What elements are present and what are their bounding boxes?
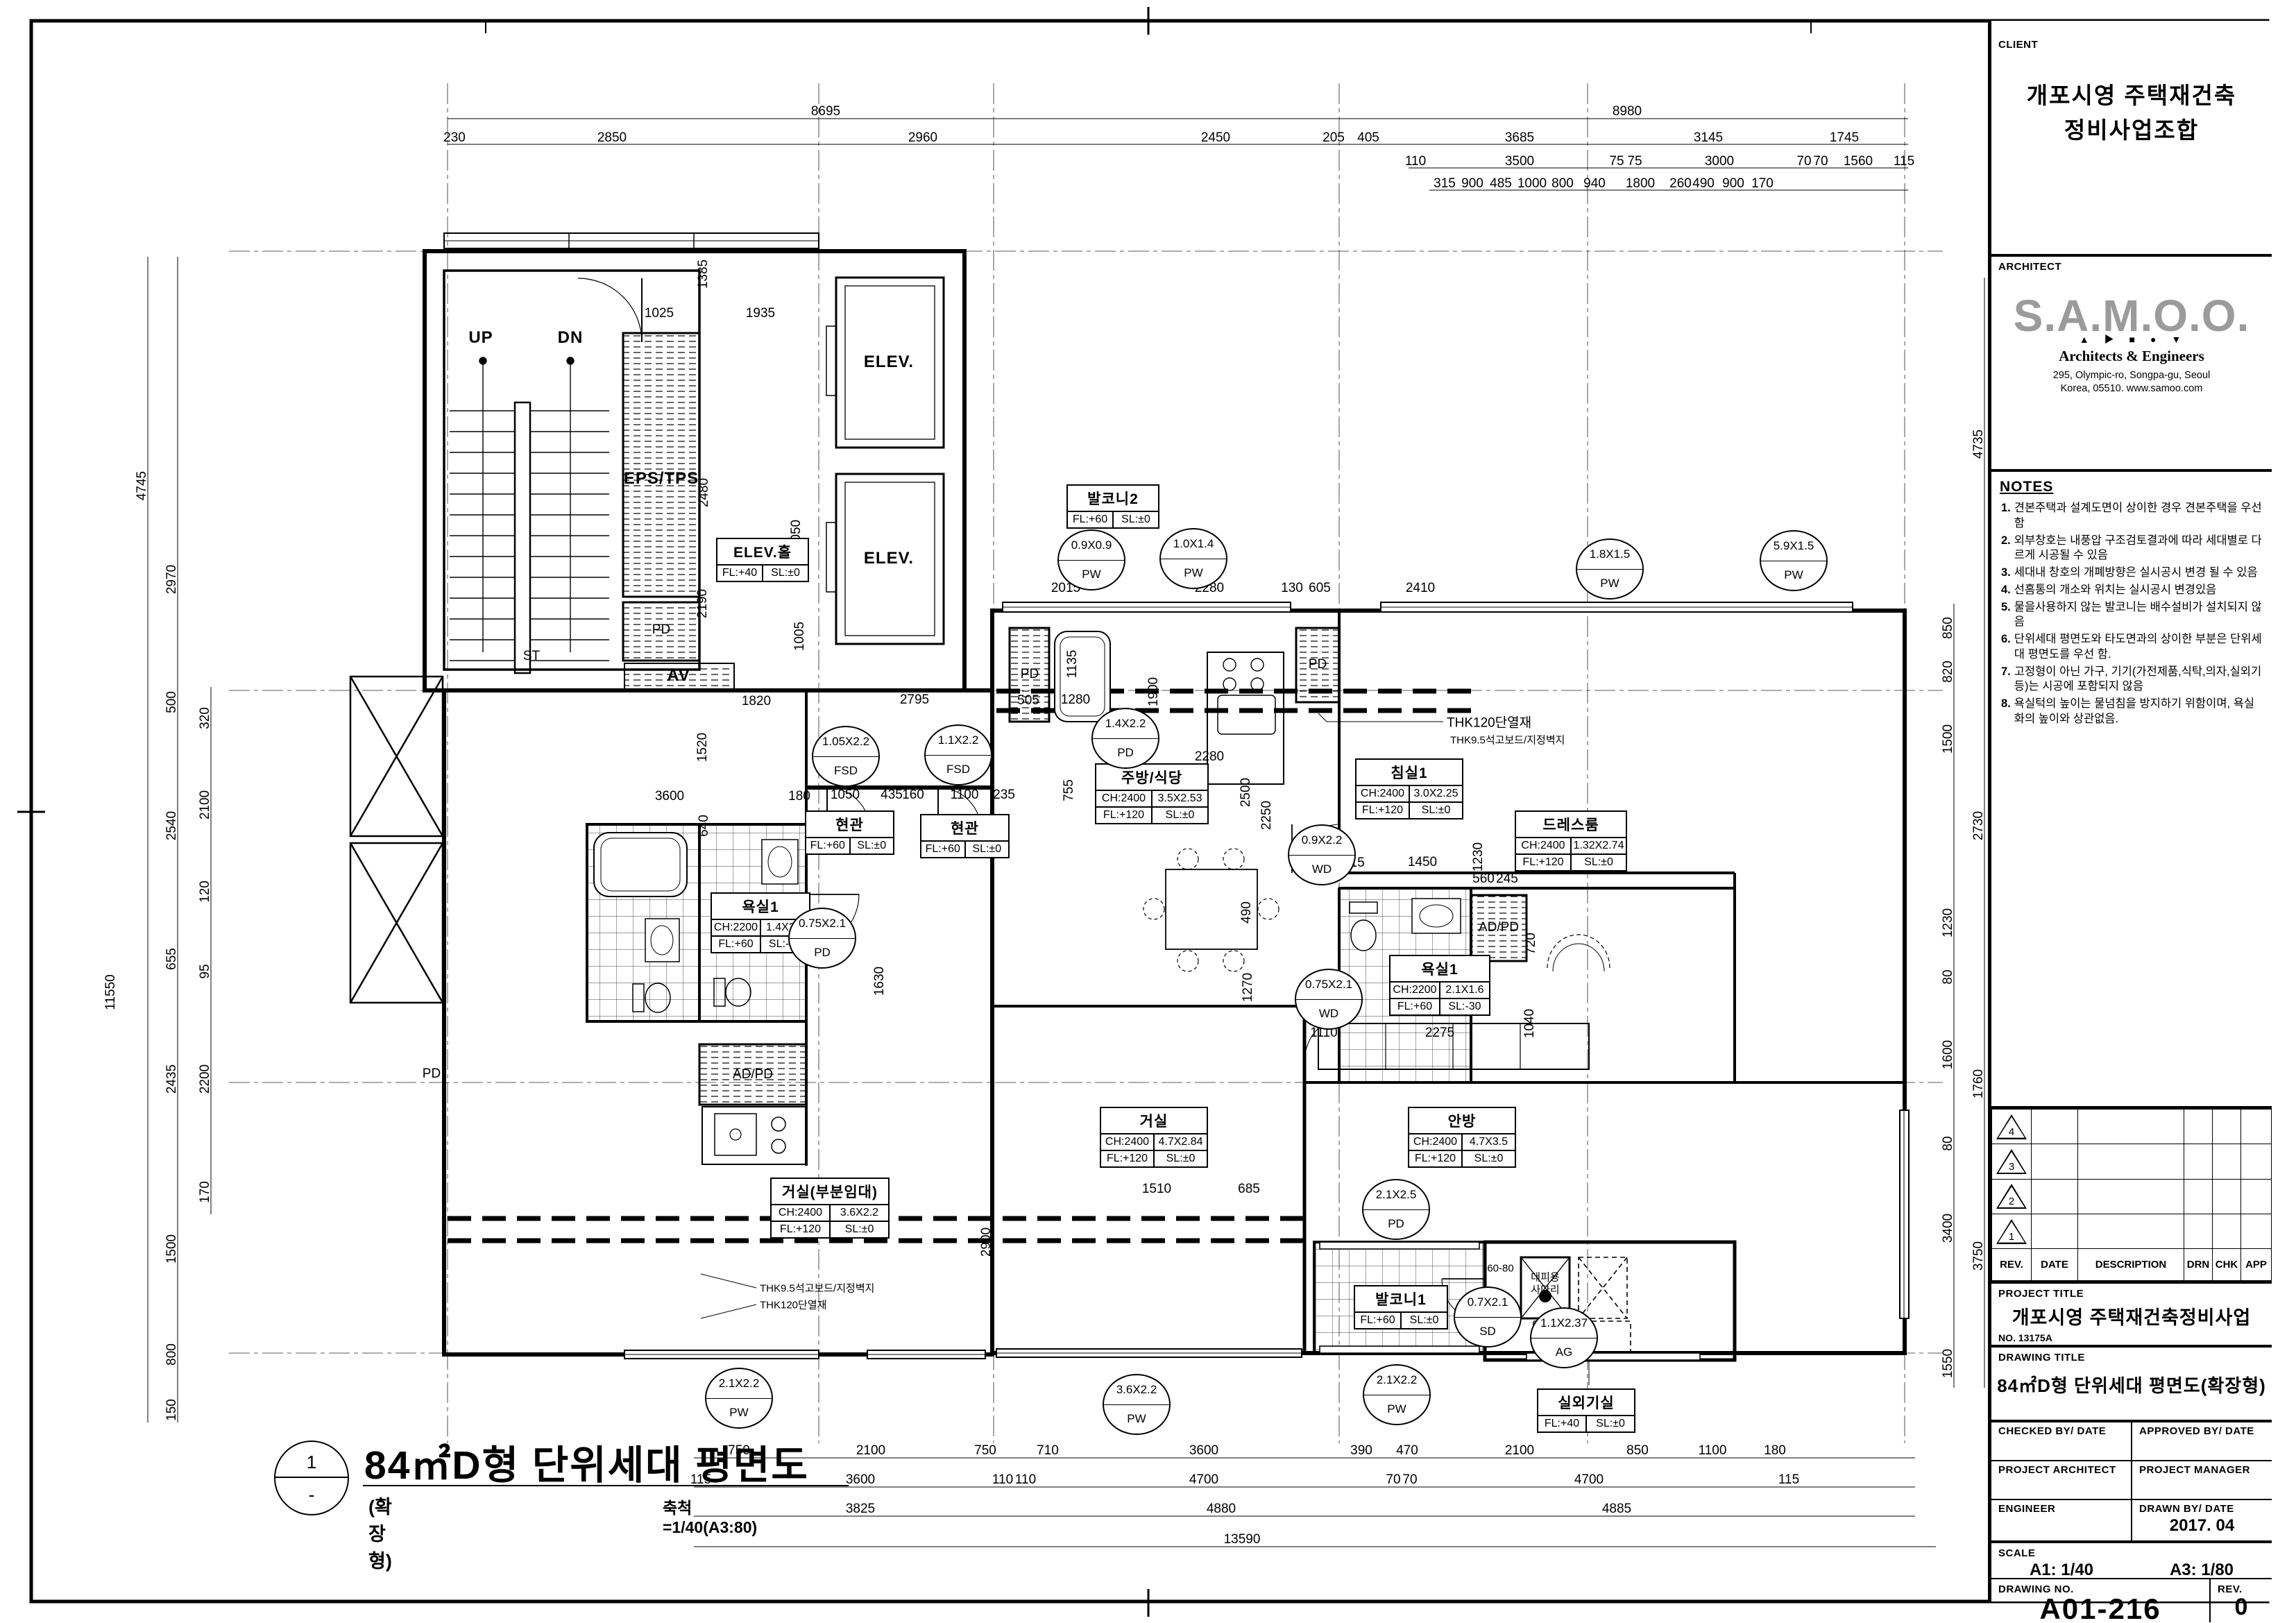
plan-title-bubble: 1 - bbox=[274, 1441, 349, 1515]
dimension-text: 490 bbox=[1239, 901, 1255, 924]
dimension-text: 150 bbox=[164, 1399, 180, 1421]
dimension-text: 2100 bbox=[1505, 1443, 1534, 1459]
engineer-label: ENGINEER bbox=[1991, 1500, 2131, 1515]
plan-title-text: 84㎡D형 단위세대 평면도 bbox=[364, 1434, 809, 1490]
dimension-text: 1820 bbox=[742, 694, 771, 709]
project-title-section: PROJECT TITLE 개포시영 주택재건축정비사업 NO. 13175A bbox=[1991, 1284, 2272, 1348]
dimension-text: 4700 bbox=[1574, 1472, 1604, 1488]
dimension-text: 1600 bbox=[1941, 1040, 1956, 1069]
dimension-text: 1760 bbox=[1971, 1069, 1987, 1098]
dimension-text: 2435 bbox=[164, 1064, 180, 1094]
plan-text-label: ELEV. bbox=[864, 352, 914, 372]
dimension-text: 110 bbox=[1405, 154, 1426, 169]
dimension-text: 485 bbox=[1490, 176, 1512, 192]
plan-text-label: THK9.5석고보드/지정벽지 bbox=[760, 1281, 874, 1295]
plan-text-label: AD/PD bbox=[733, 1067, 773, 1082]
dimension-text: 2280 bbox=[1195, 749, 1224, 765]
opening-tag-pw: 1.8X1.5PW bbox=[1576, 538, 1644, 600]
room-info-table: 거실(부분임대)CH:24003.6X2.2FL:+120SL:±0 bbox=[770, 1178, 890, 1239]
dimension-text: 170 bbox=[1751, 176, 1774, 192]
opening-tag-fsd: 1.1X2.2FSD bbox=[924, 724, 992, 785]
opening-tag-ag: 1.1X2.37AG bbox=[1530, 1307, 1598, 1368]
plan-text-label: AV bbox=[667, 666, 690, 686]
dimension-text: 230 bbox=[443, 130, 466, 146]
dimension-text: 560 bbox=[1472, 872, 1495, 887]
note-item: 3.세대내 창호의 개폐방향은 실시공시 변경 될 수 있음 bbox=[2001, 566, 2265, 581]
scale-section: SCALE A1: 1/40 A3: 1/80 bbox=[1991, 1543, 2272, 1579]
room-info-table: 드레스룸CH:24001.32X2.74FL:+120SL:±0 bbox=[1515, 810, 1627, 872]
dimension-text: 2100 bbox=[198, 790, 213, 819]
dimension-text: 4745 bbox=[135, 471, 150, 500]
dimension-text: 320 bbox=[198, 707, 213, 729]
dimension-text: 850 bbox=[1626, 1443, 1649, 1459]
note-item: 2.외부창호는 내풍압 구조검토결과에 따라 세대별로 다르게 시공될 수 있음 bbox=[2001, 534, 2265, 564]
plan-title-number: 1 bbox=[275, 1452, 348, 1473]
opening-tag-pd: 2.1X2.5PD bbox=[1362, 1179, 1430, 1240]
dimension-text: 11550 bbox=[103, 974, 119, 1010]
dimension-text: 1385 bbox=[696, 260, 711, 289]
client-section: CLIENT 개포시영 주택재건축 정비사업조합 bbox=[1991, 35, 2272, 257]
dimension-text: 435 bbox=[881, 788, 903, 803]
drawing-no-section: DRAWING NO. A01-216 REV. 0 bbox=[1991, 1579, 2272, 1622]
client-label: CLIENT bbox=[1991, 35, 2272, 51]
dimension-text: 1500 bbox=[1941, 724, 1956, 754]
room-info-table: 안방CH:24004.7X3.5FL:+120SL:±0 bbox=[1408, 1107, 1516, 1168]
dimension-text: 850 bbox=[1941, 617, 1956, 639]
dimension-text: 95 bbox=[198, 964, 213, 978]
dimension-text: 2900 bbox=[979, 1227, 994, 1257]
drawing-no: A01-216 bbox=[1991, 1592, 2209, 1623]
dimension-text: 2970 bbox=[164, 565, 180, 594]
room-info-table: 욕실1CH:22002.1X1.6FL:+60SL:-30 bbox=[1389, 955, 1490, 1016]
project-manager-label: PROJECT MANAGER bbox=[2132, 1461, 2272, 1476]
note-item: 1.견본주택과 설계도면이 상이한 경우 견본주택을 우선함 bbox=[2001, 501, 2265, 532]
opening-tag-pw: 3.6X2.2PW bbox=[1103, 1374, 1171, 1435]
dimension-text: 1100 bbox=[1699, 1443, 1727, 1459]
architect-section: ARCHITECT S.A.M.O.O. ▲ ▶ ■ ● ▼ Architect… bbox=[1991, 257, 2272, 472]
dimension-text: 755 bbox=[1062, 779, 1077, 801]
dimension-text: 70 bbox=[1402, 1472, 1417, 1488]
dimension-text: 490 bbox=[1692, 176, 1715, 192]
dimension-text: 3400 bbox=[1941, 1214, 1956, 1243]
rev-no: 0 bbox=[2211, 1594, 2272, 1621]
opening-tag-pw: 2.1X2.2PW bbox=[1363, 1364, 1431, 1425]
dimension-text: 13590 bbox=[1224, 1532, 1261, 1547]
dimension-text: 685 bbox=[1238, 1182, 1260, 1197]
client-name: 개포시영 주택재건축 정비사업조합 bbox=[1991, 78, 2272, 147]
dimension-text: 2850 bbox=[597, 130, 627, 146]
dimension-text: 1100 bbox=[951, 788, 979, 803]
approved-by-label: APPROVED BY/ DATE bbox=[2132, 1422, 2272, 1437]
dimension-text: 2190 bbox=[695, 589, 711, 618]
opening-tag-pw: 2.1X2.2PW bbox=[705, 1368, 773, 1429]
dimension-text: 110 bbox=[992, 1472, 1013, 1488]
samoo-logo: S.A.M.O.O. ▲ ▶ ■ ● ▼ Architects & Engine… bbox=[1991, 296, 2272, 396]
dimension-text: 8695 bbox=[811, 104, 840, 119]
checked-by-label: CHECKED BY/ DATE bbox=[1991, 1422, 2131, 1437]
dimension-text: 390 bbox=[1350, 1443, 1372, 1459]
dimension-text: 820 bbox=[1941, 661, 1956, 683]
dimension-text: 315 bbox=[1434, 176, 1456, 192]
dimension-text: 4735 bbox=[1971, 430, 1987, 459]
architect-label: ARCHITECT bbox=[1991, 257, 2272, 273]
dimension-text: 900 bbox=[1461, 176, 1483, 192]
dimension-text: 1560 bbox=[1844, 154, 1873, 169]
dimension-text: 3000 bbox=[1705, 154, 1734, 169]
dimension-text: 80 bbox=[1941, 969, 1956, 984]
dimension-text: 2450 bbox=[1201, 130, 1230, 146]
note-item: 6.단위세대 평면도와 타도면과의 상이한 부분은 단위세대 평면도를 우선 함… bbox=[2001, 632, 2265, 663]
dimension-text: 245 bbox=[1496, 872, 1518, 887]
plan-text-label: PD bbox=[423, 1067, 441, 1082]
opening-tag-pd: 1.4X2.2PD bbox=[1091, 708, 1159, 769]
notes-title: NOTES bbox=[2000, 479, 2272, 495]
dimension-text: 605 bbox=[1309, 581, 1331, 596]
dimension-text: 2730 bbox=[1971, 811, 1987, 840]
project-title-label: PROJECT TITLE bbox=[1991, 1284, 2272, 1300]
dimension-text: 115 bbox=[1778, 1472, 1799, 1488]
drawn-date: 2017. 04 bbox=[2132, 1516, 2272, 1536]
dimension-text: 2540 bbox=[164, 811, 180, 840]
dimension-text: 800 bbox=[1551, 176, 1574, 192]
dimension-text: 3145 bbox=[1694, 130, 1723, 146]
plan-text-label: UP bbox=[468, 328, 493, 348]
room-info-table: 현관FL:+60SL:±0 bbox=[920, 814, 1010, 858]
dimension-text: 170 bbox=[198, 1181, 213, 1203]
dimension-text: 70 bbox=[1386, 1472, 1400, 1488]
dimension-text: 1230 bbox=[1471, 842, 1486, 872]
room-info-table: 실외기실FL:+40SL:±0 bbox=[1537, 1388, 1635, 1433]
architect-manager-row: PROJECT ARCHITECT PROJECT MANAGER bbox=[1991, 1461, 2272, 1500]
dimension-text: 1000 bbox=[1517, 176, 1547, 192]
dimension-text: 1935 bbox=[746, 306, 775, 321]
dimension-text: 640 bbox=[697, 815, 712, 837]
note-item: 5.물을사용하지 않는 발코니는 배수설비가 설치되지 않음 bbox=[2001, 600, 2265, 631]
room-info-table: 거실CH:24004.7X2.84FL:+120SL:±0 bbox=[1100, 1107, 1208, 1168]
dimension-text: 3825 bbox=[846, 1502, 875, 1517]
dimension-text: 180 bbox=[1764, 1443, 1786, 1459]
dimension-text: 505 bbox=[1017, 693, 1039, 708]
dimension-text: 75 bbox=[1609, 154, 1624, 169]
dimension-text: 75 bbox=[1627, 154, 1642, 169]
dimension-text: 720 bbox=[1524, 933, 1539, 955]
opening-tag-pw: 5.9X1.5PW bbox=[1760, 530, 1828, 591]
plan-text-label: THK120단열재 bbox=[1447, 713, 1531, 731]
project-title: 개포시영 주택재건축정비사업 bbox=[1991, 1302, 2272, 1329]
dimension-text: 2200 bbox=[198, 1064, 213, 1094]
note-item: 4.선홈통의 개소와 위치는 실시공시 변경있음 bbox=[2001, 583, 2265, 598]
drawing-title-label: DRAWING TITLE bbox=[1991, 1348, 2272, 1363]
dimension-text: 1510 bbox=[1142, 1182, 1171, 1197]
engineer-drawn-row: ENGINEER DRAWN BY/ DATE 2017. 04 bbox=[1991, 1500, 2272, 1543]
plan-text-label: AD/PD bbox=[1479, 920, 1519, 935]
dimension-text: 260 bbox=[1669, 176, 1692, 192]
dimension-text: 3600 bbox=[1189, 1443, 1218, 1459]
dimension-text: 2275 bbox=[1425, 1026, 1454, 1041]
room-info-table: ELEV.홀FL:+40SL:±0 bbox=[716, 538, 809, 582]
dimension-text: 1280 bbox=[1061, 692, 1090, 708]
dimension-text: 900 bbox=[1722, 176, 1744, 192]
dimension-text: 405 bbox=[1357, 130, 1379, 146]
dimension-text: 120 bbox=[198, 881, 213, 903]
plan-title-scale: 축척=1/40(A3:80) bbox=[663, 1495, 757, 1537]
rev-label: REV. bbox=[2211, 1579, 2272, 1595]
dimension-text: 1630 bbox=[872, 967, 887, 996]
project-architect-label: PROJECT ARCHITECT bbox=[1991, 1461, 2131, 1476]
notes-list: 1.견본주택과 설계도면이 상이한 경우 견본주택을 우선함2.외부창호는 내풍… bbox=[1991, 501, 2272, 727]
dimension-text: 4700 bbox=[1189, 1472, 1218, 1488]
plan-text-label: DN bbox=[558, 328, 584, 348]
opening-tag-pw: 0.9X0.9PW bbox=[1057, 529, 1125, 590]
dimension-text: 8980 bbox=[1613, 104, 1642, 119]
room-info-table: 발코니1FL:+60SL:±0 bbox=[1354, 1285, 1448, 1329]
dimension-text: 2500 bbox=[1239, 778, 1254, 807]
dimension-text: 3750 bbox=[1971, 1241, 1987, 1271]
dimension-text: 235 bbox=[993, 788, 1015, 803]
dimension-text: 500 bbox=[164, 691, 180, 713]
dimension-text: 1005 bbox=[792, 622, 808, 651]
plan-text-label: PD bbox=[1021, 667, 1039, 682]
room-info-table: 침실1CH:24003.0X2.25FL:+120SL:±0 bbox=[1355, 758, 1463, 819]
dimension-text: 2480 bbox=[697, 478, 712, 507]
dimension-text: 2410 bbox=[1406, 581, 1435, 596]
dimension-text: 710 bbox=[1037, 1443, 1059, 1459]
scale-a1: A1: 1/40 bbox=[2030, 1561, 2093, 1580]
notes-section: NOTES 1.견본주택과 설계도면이 상이한 경우 견본주택을 우선함2.외부… bbox=[1991, 472, 2272, 1109]
dimension-text: 70 bbox=[1813, 154, 1828, 169]
dimension-text: 1040 bbox=[1522, 1009, 1538, 1038]
plan-text-label: ELEV. bbox=[864, 549, 914, 568]
dimension-text: 3500 bbox=[1505, 154, 1534, 169]
opening-tag-pw: 1.0X1.4PW bbox=[1159, 528, 1227, 589]
dimension-text: 2100 bbox=[856, 1443, 885, 1459]
dimension-text: 750 bbox=[974, 1443, 996, 1459]
revision-table: 4 3 2 1 REV.DATEDESCRIPTIONDRNCHKAPP bbox=[1991, 1109, 2272, 1284]
drawn-by-label: DRAWN BY/ DATE bbox=[2132, 1500, 2272, 1515]
dimension-text: 110 bbox=[1015, 1472, 1036, 1488]
dimension-text: 1745 bbox=[1830, 130, 1859, 146]
plan-text-label: THK120단열재 bbox=[760, 1298, 826, 1312]
opening-tag-pd: 0.75X2.1PD bbox=[788, 908, 856, 969]
dimension-text: 1135 bbox=[1065, 650, 1080, 679]
drawing-title: 84㎡D형 단위세대 평면도(확장형) bbox=[1991, 1372, 2272, 1397]
dimension-text: 3685 bbox=[1505, 130, 1534, 146]
dimension-text: 1500 bbox=[164, 1234, 180, 1264]
plan-text-label: PD bbox=[1309, 657, 1327, 672]
dimension-text: 1520 bbox=[695, 733, 711, 762]
opening-tag-sd: 0.7X2.1SD bbox=[1454, 1286, 1522, 1348]
dimension-text: 655 bbox=[164, 948, 180, 970]
plan-title-subtitle: (확장형) bbox=[368, 1492, 392, 1573]
opening-tag-wd: 0.75X2.1WD bbox=[1295, 969, 1363, 1030]
room-info-table: 발코니2FL:+60SL:±0 bbox=[1066, 484, 1159, 529]
opening-tag-fsd: 1.05X2.2FSD bbox=[812, 726, 880, 787]
dimension-text: 80 bbox=[1941, 1136, 1956, 1150]
dimension-text: 2250 bbox=[1259, 801, 1275, 830]
scale-a3: A3: 1/80 bbox=[2170, 1561, 2234, 1580]
dimension-text: 1025 bbox=[645, 306, 674, 321]
architect-address: 295, Olympic-ro, Songpa-gu, Seoul Korea,… bbox=[1991, 369, 2272, 396]
plan-text-label: PD bbox=[652, 622, 670, 638]
room-info-table: 현관FL:+60SL:±0 bbox=[805, 810, 894, 855]
dimension-text: 1450 bbox=[1408, 855, 1437, 870]
dimension-text: 470 bbox=[1396, 1443, 1418, 1459]
dimension-text: 205 bbox=[1323, 130, 1345, 146]
dimension-text: 4880 bbox=[1207, 1502, 1236, 1517]
dimension-text: 1050 bbox=[831, 788, 860, 803]
dimension-text: 70 bbox=[1796, 154, 1811, 169]
note-item: 8.욕실턱의 높이는 물넘침을 방지하기 위함이며, 욕실화의 높이와 상관없음… bbox=[2001, 697, 2265, 727]
dimension-text: 940 bbox=[1583, 176, 1606, 192]
dimension-text: 4885 bbox=[1602, 1502, 1631, 1517]
opening-tag-wd: 0.9X2.2WD bbox=[1288, 824, 1356, 885]
dimension-text: 160 bbox=[902, 788, 924, 803]
dimension-text: 180 bbox=[788, 789, 810, 804]
plan-title-sheet-ref: - bbox=[275, 1484, 348, 1506]
room-info-table: 주방/식당CH:24003.5X2.53FL:+120SL:±0 bbox=[1095, 763, 1209, 824]
dimension-text: 1550 bbox=[1941, 1349, 1956, 1378]
plan-text-label: -60-80 bbox=[1483, 1263, 1513, 1275]
checked-approved-row: CHECKED BY/ DATE APPROVED BY/ DATE bbox=[1991, 1422, 2272, 1461]
dimension-text: 2960 bbox=[908, 130, 937, 146]
dimension-text: 1900 bbox=[1146, 677, 1162, 706]
dimension-text: 800 bbox=[164, 1343, 180, 1366]
plan-text-label: THK9.5석고보드/지정벽지 bbox=[1450, 733, 1565, 747]
samoo-logo-subtitle: Architects & Engineers bbox=[1991, 348, 2272, 365]
plan-text-label: 사다리 bbox=[1531, 1282, 1559, 1297]
dimension-text: 1230 bbox=[1941, 908, 1956, 937]
samoo-logo-text: S.A.M.O.O. bbox=[1991, 296, 2272, 337]
scale-label: SCALE bbox=[1991, 1543, 2272, 1559]
dimension-text: 1800 bbox=[1626, 176, 1655, 192]
dimension-text: 130 bbox=[1281, 581, 1303, 596]
title-block: CLIENT 개포시영 주택재건축 정비사업조합 ARCHITECT S.A.M… bbox=[1988, 21, 2272, 1601]
drawing-title-section: DRAWING TITLE 84㎡D형 단위세대 평면도(확장형) bbox=[1991, 1348, 2272, 1422]
dimension-text: 3600 bbox=[846, 1472, 875, 1488]
dimension-text: 115 bbox=[1894, 154, 1914, 169]
project-no: NO. 13175A bbox=[1991, 1332, 2272, 1343]
drawing-sheet: ELEV.홀FL:+40SL:±0발코니2FL:+60SL:±0주방/식당CH:… bbox=[0, 0, 2296, 1623]
dimension-text: 1270 bbox=[1241, 973, 1256, 1002]
note-item: 7.고정형이 아닌 가구, 기기(가전제품,식탁,의자,실외기 등)는 시공에 … bbox=[2001, 665, 2265, 695]
dimension-text: 3600 bbox=[655, 789, 684, 804]
plan-text-label: ST bbox=[523, 649, 540, 664]
dimension-text: 2795 bbox=[900, 692, 929, 708]
plan-text-label: EPS/TPS bbox=[624, 469, 699, 488]
